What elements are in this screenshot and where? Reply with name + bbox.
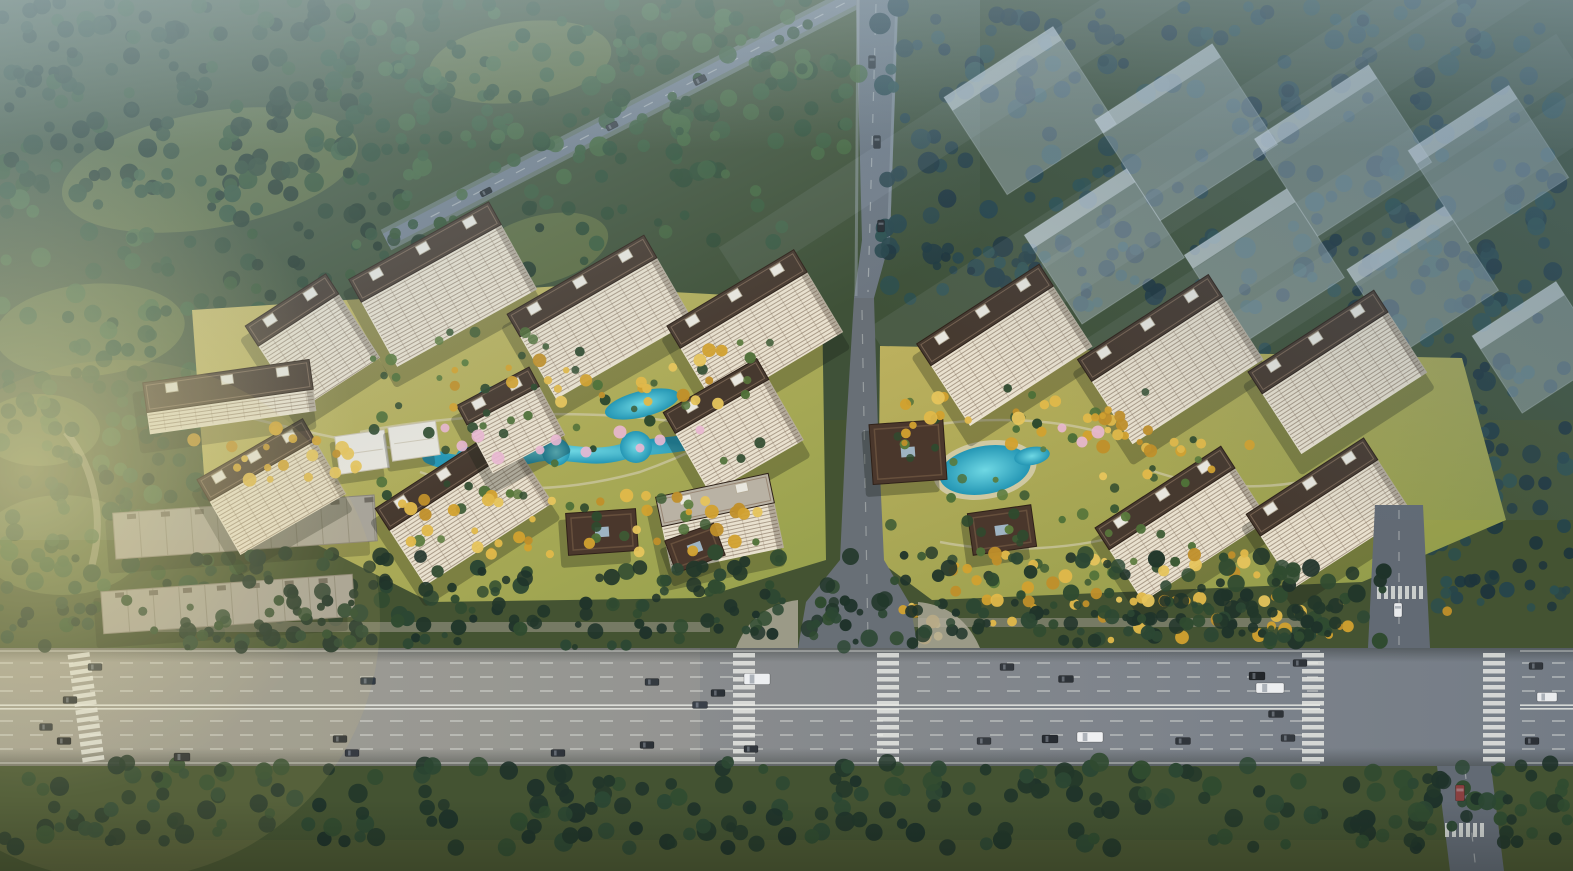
vehicle <box>1293 660 1307 667</box>
vehicle <box>551 750 565 757</box>
vehicle <box>1256 683 1284 693</box>
vehicle <box>1249 672 1265 680</box>
vehicle <box>1537 693 1557 702</box>
aerial-site-rendering <box>0 0 1573 871</box>
vehicle <box>345 750 359 757</box>
vehicle <box>1059 676 1074 683</box>
vehicle <box>1525 738 1539 745</box>
vehicle <box>744 746 758 753</box>
vehicle <box>693 702 708 709</box>
vehicle <box>645 679 659 686</box>
vehicle <box>1394 603 1402 617</box>
vehicle <box>1269 711 1284 718</box>
vehicle <box>640 742 654 749</box>
vehicle <box>1077 732 1103 742</box>
vehicle <box>1529 663 1543 670</box>
vehicle <box>744 674 770 685</box>
vehicle <box>711 690 725 697</box>
vehicle <box>1281 735 1295 742</box>
vehicle <box>1000 664 1014 671</box>
vehicle <box>1042 735 1058 743</box>
scene-canvas <box>0 0 1573 871</box>
vehicle <box>1176 738 1191 745</box>
vehicle <box>977 738 991 745</box>
vehicle <box>1456 785 1465 801</box>
